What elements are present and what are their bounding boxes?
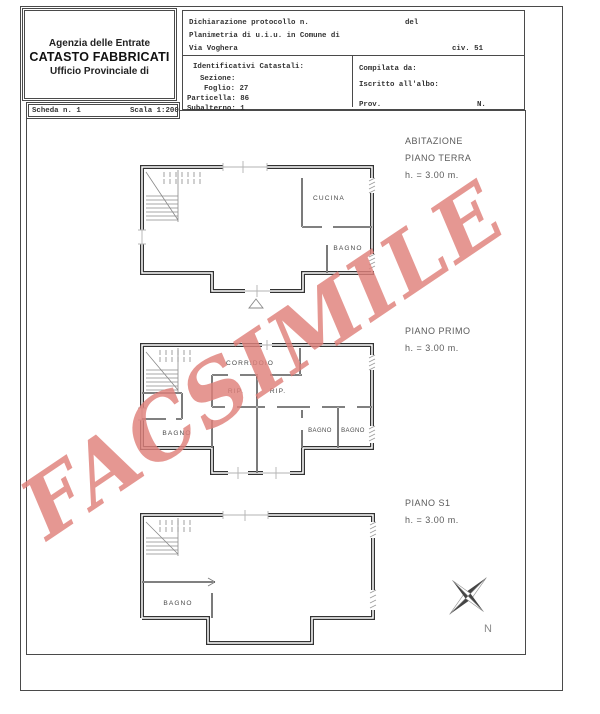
prov-label: Prov.: [359, 101, 381, 109]
room-label-bagno-s1: BAGNO: [163, 600, 192, 607]
window-openings: [223, 510, 268, 521]
scheda-inner-border: Scheda n. 1 Scala 1:200: [28, 104, 178, 117]
room-label-bagno-pt: BAGNO: [333, 245, 362, 252]
provincial-office-label: Ufficio Provinciale di: [25, 65, 174, 78]
protocol-form: Dichiarazione protocollo n. del Planimet…: [182, 10, 525, 110]
walls-outer: [142, 515, 373, 643]
floor1-height-label: h. = 3.00 m.: [405, 343, 459, 353]
walls-outer: [142, 167, 372, 291]
agency-name: Agenzia delle Entrate: [25, 37, 174, 50]
compass-star-icon: [434, 568, 502, 630]
floor1-name-label: PIANO PRIMO: [405, 326, 471, 336]
agency-header-inner-border: Agenzia delle Entrate CATASTO FABBRICATI…: [24, 10, 175, 99]
compass-rose: N: [432, 568, 512, 640]
particella-field: Particella: 86: [187, 95, 249, 103]
floor0-building-label: ABITAZIONE: [405, 136, 463, 146]
scala-value: Scala 1:200: [130, 107, 179, 115]
floor2-name-label: PIANO S1: [405, 498, 451, 508]
floorplan-piano-terra: CUCINA BAGNO: [130, 160, 380, 315]
staircase: [146, 170, 200, 222]
window-openings: [138, 161, 270, 297]
protocol-date-label: del: [405, 19, 418, 27]
entrance-marker-triangle: [249, 299, 263, 308]
protocol-horizontal-divider: [183, 55, 524, 56]
floor0-name-label: PIANO TERRA: [405, 153, 471, 163]
room-label-corridoio: CORRIDOIO: [226, 360, 274, 367]
walls-interior: [142, 578, 215, 618]
sezione-field: Sezione:: [200, 75, 235, 83]
protocol-vertical-divider: [352, 55, 353, 107]
room-label-cucina: CUCINA: [313, 195, 345, 202]
cadastral-ids-title: Identificativi Catastali:: [193, 63, 304, 71]
scheda-number: Scheda n. 1: [32, 107, 81, 115]
catasto-title: CATASTO FABBRICATI: [25, 50, 174, 65]
compilata-da-label: Compilata da:: [359, 65, 417, 73]
protocol-number-label: Dichiarazione protocollo n.: [189, 19, 309, 27]
planimetria-label: Planimetria di u.i.u. in Comune di: [189, 32, 340, 40]
floor0-height-label: h. = 3.00 m.: [405, 170, 459, 180]
room-label-rip-2: RIP.: [270, 388, 286, 395]
civic-number: civ. 51: [452, 45, 483, 53]
scheda-scala-box: Scheda n. 1 Scala 1:200: [26, 102, 180, 119]
agency-header-box: Agenzia delle Entrate CATASTO FABBRICATI…: [22, 8, 177, 101]
cadastral-document-page: Agenzia delle Entrate CATASTO FABBRICATI…: [0, 0, 600, 714]
staircase: [146, 518, 190, 556]
street-name: Via Voghera: [189, 45, 238, 53]
room-label-bagno-p1-left: BAGNO: [162, 430, 191, 437]
room-label-bagno-p1-mid: BAGNO: [308, 428, 332, 434]
foglio-field: Foglio: 27: [204, 85, 248, 93]
floorplan-piano-s1: BAGNO: [130, 510, 380, 655]
floor2-height-label: h. = 3.00 m.: [405, 515, 459, 525]
room-label-rip-1: RIP.: [228, 388, 244, 395]
room-label-bagno-p1-right: BAGNO: [341, 428, 365, 434]
floorplan-piano-primo: CORRIDOIO RIP. RIP. BAGNO BAGNO BAGNO: [130, 340, 380, 480]
n-label: N.: [477, 101, 486, 109]
iscritto-albo-label: Iscritto all'albo:: [359, 81, 439, 89]
staircase: [146, 348, 190, 393]
walls-interior: [302, 178, 372, 273]
compass-north-label: N: [484, 623, 492, 635]
